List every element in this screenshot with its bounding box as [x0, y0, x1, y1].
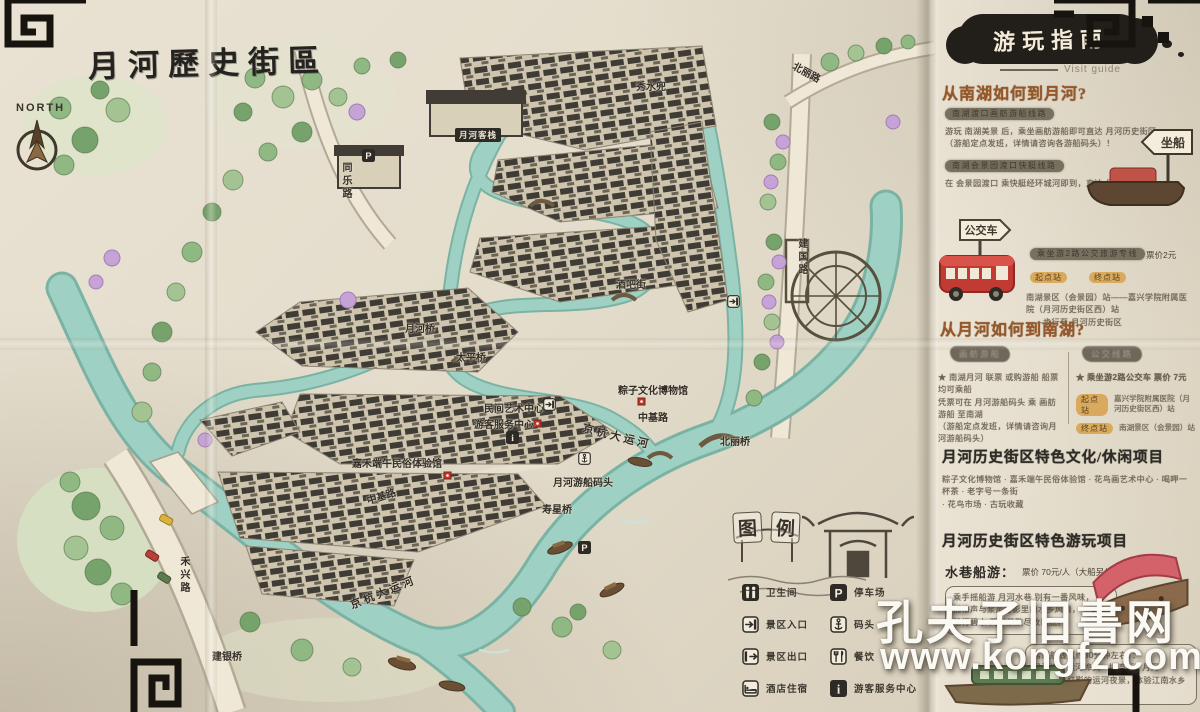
section-title-s2: 从月河如何到南湖? [940, 316, 1085, 340]
map-label: 粽子文化博物馆 [618, 382, 688, 397]
guide-subtitle: Visit guide [1064, 64, 1121, 75]
legend-item: 餐饮 [830, 640, 917, 672]
route-text: 南湖景区（会景园）站 [1119, 423, 1195, 433]
map-label: 月河游船码头 [553, 474, 613, 489]
map-label: 太平桥 [456, 349, 486, 364]
guide-subtitle-row: Visit guide [1000, 64, 1121, 75]
fine-print-line: ★ 南湖月河 联票 或购游船 船票 均可乘船 [938, 372, 1064, 397]
map-label: 秀水兜 [636, 78, 666, 93]
parking-icon: P [362, 149, 375, 162]
divider-line [1000, 69, 1058, 71]
legend-label: 酒店住宿 [766, 681, 808, 695]
tag-chip: 起点站 [1076, 394, 1108, 416]
map-label: 中基路 [638, 409, 668, 424]
svg-text:i: i [511, 434, 514, 444]
guide-header-cloud: 游玩指南 [958, 14, 1144, 64]
legend-item: 卫生间 [742, 576, 808, 608]
map-label: 月河桥 [405, 320, 435, 335]
column-head: 画舫游船 [950, 346, 1010, 362]
map-label: 京杭大运河 [348, 571, 419, 612]
map-label: 中基路 [364, 484, 397, 508]
legend-title-char: 图 [732, 511, 763, 543]
parking-icon: P [830, 584, 847, 601]
bus-tags-row: 起点站 终点站 [1030, 272, 1126, 283]
bus-column-star: ★ 乘坐游2路公交车 票价 7元 [1076, 372, 1196, 384]
tag-chip: 终点站 [1089, 272, 1126, 283]
fine-print-line: 粽子文化博物馆 · 嘉禾端午民俗体验馆 · 花鸟画艺术中心 · 喝呷一杯茶 · … [942, 474, 1194, 499]
legend-item: 码头 [830, 608, 917, 640]
legend-item: P停车场 [830, 576, 917, 608]
info-icon: i [830, 680, 847, 697]
parking-icon: P [578, 541, 591, 554]
fine-print-line: （游船定点发班，详情请咨询月河游船码头） [938, 421, 1064, 446]
legend-column-right: P停车场码头餐饮i游客服务中心 [830, 576, 917, 704]
green-boat-illustration [942, 658, 1094, 708]
tag-chip: 终点站 [1076, 423, 1113, 434]
toilet-icon [742, 584, 759, 601]
section-title-s3: 月河历史街区特色文化/休闲项目 [942, 446, 1164, 467]
boat-tour-label: 水巷船游： [945, 562, 1015, 581]
s3-text: 粽子文化博物馆 · 嘉禾端午民俗体验馆 · 花鸟画艺术中心 · 喝呷一杯茶 · … [942, 474, 1194, 511]
bus-line-bar: 乘坐游2路公交旅游专线 [1030, 248, 1145, 260]
legend-title-char: 例 [770, 511, 800, 543]
legend-label: 码头 [854, 617, 875, 631]
legend-item: 景区入口 [742, 608, 808, 640]
map-label: 禾兴路 [176, 556, 191, 595]
map-label: 北丽桥 [720, 433, 750, 448]
legend-label: 卫生间 [766, 585, 798, 599]
info-icon: i [506, 431, 519, 444]
map-poster: 月河客栈秀水兜北丽路同乐路建国路酒吧街月河桥太平桥粽子文化博物馆中基路民间艺术中… [0, 0, 1200, 712]
route-text: 嘉兴学院附属医院（月河历史街区西）站 [1114, 394, 1196, 415]
entrance-icon [742, 616, 759, 633]
anchor-icon [578, 452, 591, 465]
map-label: 北丽路 [790, 58, 824, 85]
map-label: 酒吧街 [616, 276, 646, 291]
legend-label: 游客服务中心 [854, 681, 917, 695]
bus-route-row: 终点站南湖景区（会景园）站 [1076, 423, 1196, 434]
legend-label: 景区入口 [766, 617, 808, 631]
svg-text:P: P [365, 151, 371, 161]
map-label: 寿星桥 [542, 501, 572, 516]
fine-print-line: · 花鸟市场 · 古玩收藏 [942, 499, 1194, 511]
boat-sign-illustration: 坐船 [1080, 126, 1198, 218]
map-label: 月河客栈 [455, 128, 501, 142]
map-title: 月河歷史街區 [87, 35, 328, 86]
map-label: 建国路 [794, 238, 809, 277]
visit-guide-panel: 游玩指南 Visit guide 从南湖如何到月河? 南湖渡口画舫游船线路 游玩… [930, 0, 1200, 712]
hotel-icon [742, 680, 759, 697]
column-divider [1068, 352, 1069, 424]
boat-sign-label: 坐船 [1161, 135, 1185, 150]
ink-dot [1178, 52, 1184, 57]
route-bar: 南湖会景园渡口快艇线路 [945, 160, 1064, 172]
bus-illustration: 公交车 [938, 218, 1022, 310]
bus-sign-label: 公交车 [965, 223, 998, 237]
ink-dot [1162, 40, 1172, 48]
svg-text:P: P [834, 586, 842, 600]
bus-column-rows: 起点站嘉兴学院附属医院（月河历史街区西）站终点站南湖景区（会景园）站 [1076, 394, 1196, 441]
guide-title: 游玩指南 [992, 21, 1109, 57]
entrance-icon [543, 398, 556, 411]
map-label: 游客服务中心 [474, 416, 534, 431]
legend-item: 景区出口 [742, 640, 808, 672]
exit-icon [742, 648, 759, 665]
legend-title: 图例 [733, 512, 809, 543]
section-title-s1: 从南湖如何到月河? [942, 80, 1087, 104]
entrance-icon [727, 295, 740, 308]
bus-route-row: 起点站嘉兴学院附属医院（月河历史街区西）站 [1076, 394, 1196, 416]
map-label: 民间艺术中心 [484, 400, 544, 415]
north-label: NORTH [16, 102, 65, 114]
legend-label: 停车场 [854, 585, 886, 599]
legend-label: 餐饮 [854, 649, 875, 663]
fine-print-line: 南湖景区（会景园）站——嘉兴学院附属医院（月河历史街区西）站 [1026, 292, 1194, 317]
legend-label: 景区出口 [766, 649, 808, 663]
compass-icon [14, 118, 60, 174]
dining-icon [830, 648, 847, 665]
map-label: 嘉禾端午民俗体验馆 [352, 455, 442, 470]
anchor-icon [830, 616, 847, 633]
legend-column-left: 卫生间景区入口景区出口酒店住宿 [742, 576, 808, 704]
bus-price: 票价2元 [1146, 249, 1176, 261]
map-label: 同乐路 [338, 162, 353, 201]
boat-column-text: ★ 南湖月河 联票 或购游船 船票 均可乘船凭票可在 月河游船码头 乘 画舫游船… [938, 372, 1064, 446]
legend-item: 酒店住宿 [742, 672, 808, 704]
route-bar: 南湖渡口画舫游船线路 [945, 108, 1054, 120]
column-head: 公交线路 [1082, 346, 1142, 362]
map-label: 建银桥 [212, 648, 242, 663]
svg-text:P: P [581, 543, 587, 553]
fine-print-line: 凭票可在 月河游船码头 乘 画舫游船 至南湖 [938, 397, 1064, 422]
map-label: 京杭大运河 [581, 420, 653, 452]
legend-item: i游客服务中心 [830, 672, 917, 704]
tag-chip: 起点站 [1030, 272, 1067, 283]
